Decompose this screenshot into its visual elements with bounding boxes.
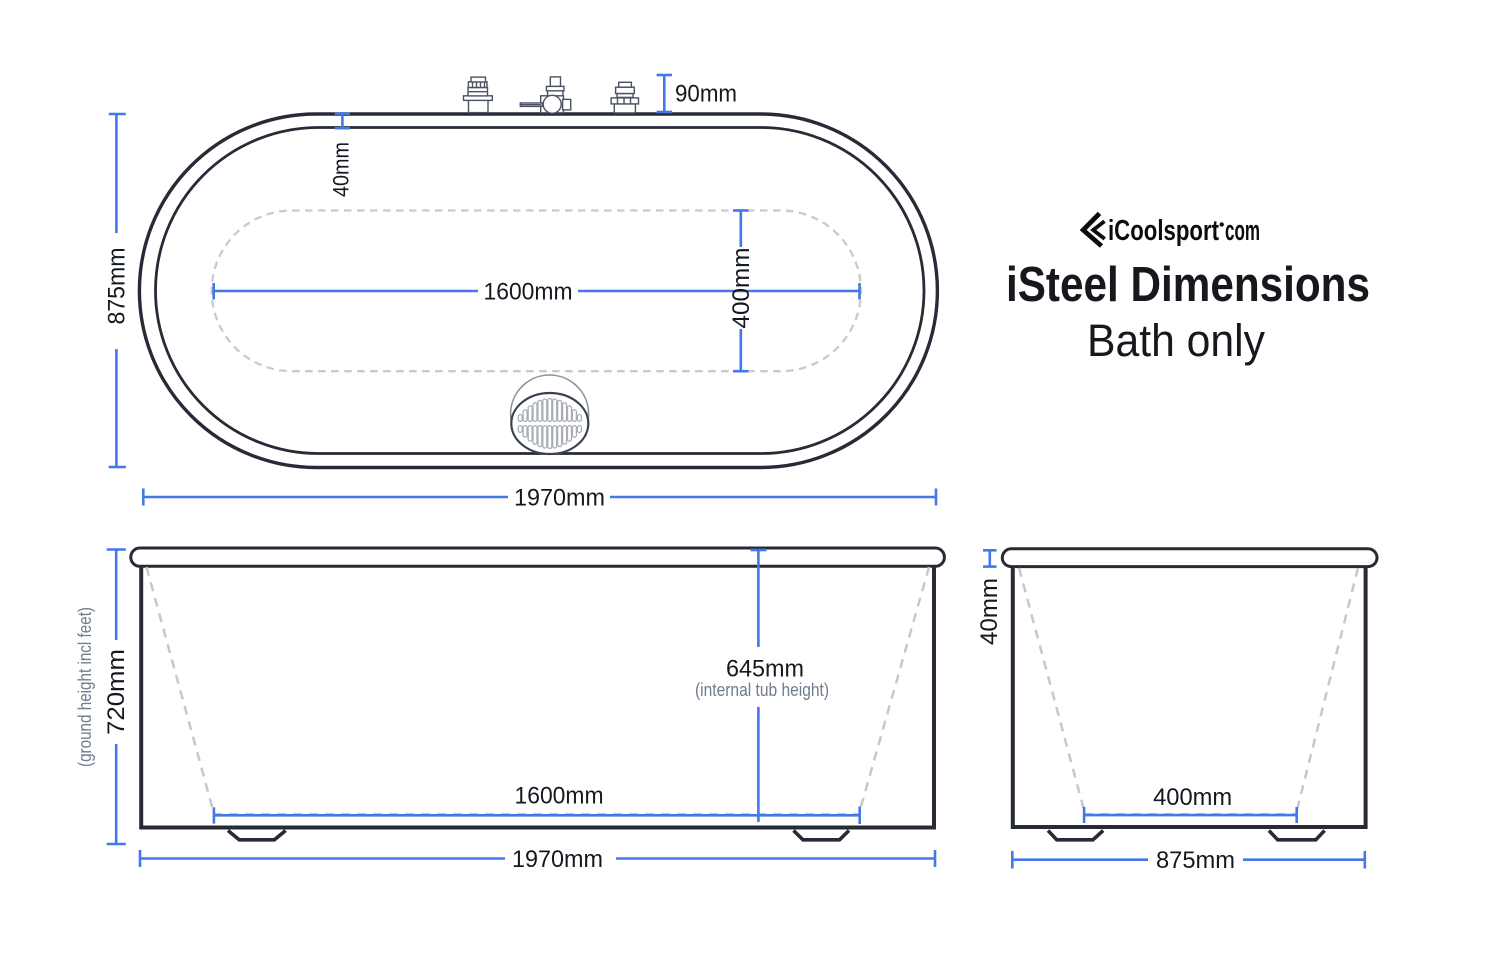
- svg-text:40mm: 40mm: [976, 578, 1003, 645]
- svg-text:com: com: [1225, 215, 1260, 247]
- svg-text:875mm: 875mm: [104, 248, 131, 325]
- svg-text:400mm: 400mm: [728, 248, 755, 329]
- svg-text:iSteel Dimensions: iSteel Dimensions: [1006, 258, 1370, 312]
- svg-text:(ground height incl feet): (ground height incl feet): [75, 607, 95, 767]
- svg-text:90mm: 90mm: [675, 81, 737, 108]
- svg-text:1600mm: 1600mm: [515, 783, 604, 810]
- svg-text:875mm: 875mm: [1156, 847, 1235, 874]
- svg-text:645mm: 645mm: [726, 656, 804, 683]
- svg-text:1600mm: 1600mm: [484, 279, 573, 306]
- svg-text:1970mm: 1970mm: [514, 485, 605, 512]
- svg-text:Bath only: Bath only: [1087, 315, 1265, 366]
- svg-text:40mm: 40mm: [329, 142, 354, 197]
- svg-text:(internal tub height): (internal tub height): [695, 680, 829, 700]
- svg-text:1970mm: 1970mm: [512, 846, 603, 873]
- svg-text:400mm: 400mm: [1153, 784, 1232, 811]
- svg-text:720mm: 720mm: [103, 649, 130, 735]
- svg-text:iCoolsport: iCoolsport: [1108, 215, 1219, 247]
